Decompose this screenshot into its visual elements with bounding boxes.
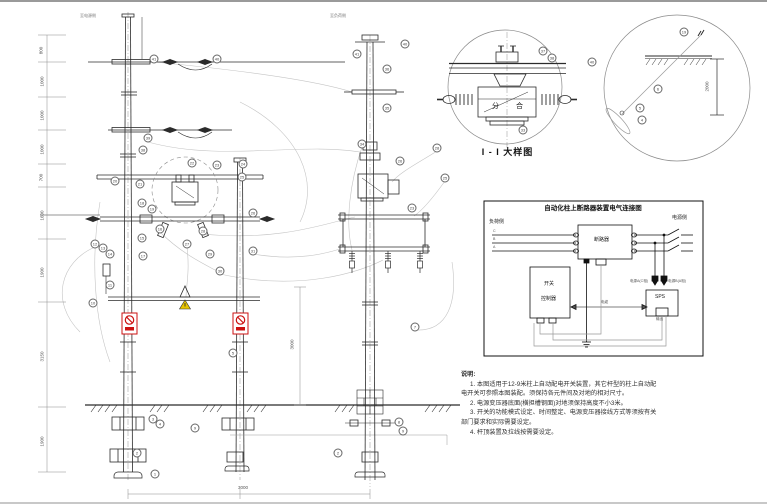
callout-bubble: 23 xyxy=(408,204,417,213)
callout-bubble: 40 xyxy=(588,58,597,67)
warning-signs xyxy=(122,300,248,334)
breaker-box-label: 断路器 xyxy=(594,238,609,244)
callout-bubble: 14 xyxy=(106,250,115,259)
controller-label-1: 开关 xyxy=(544,282,554,288)
ruler-dim-label: 1900 xyxy=(41,267,46,277)
detail-i-i-title: I - I 大样图 xyxy=(465,148,550,158)
sps-input-a-label: 电源A(C相) xyxy=(620,279,648,283)
callout-bubble: 33 xyxy=(519,126,528,135)
callout-bubble: 26 xyxy=(396,157,405,166)
callout-bubble: 11 xyxy=(106,281,115,290)
callout-bubble: 9 xyxy=(191,424,200,433)
breaker-open-label: 分 xyxy=(492,103,499,111)
note-line: 4. 杆顶装置及拉线按需要设定。 xyxy=(461,428,761,438)
phase-b-label: B xyxy=(493,237,495,241)
ruler-dim-label: 800 xyxy=(39,47,44,55)
stay-dim-label: 2000 xyxy=(706,81,711,91)
breaker-close-label: 合 xyxy=(516,103,523,111)
callout-bubble: 21 xyxy=(136,180,145,189)
callout-bubble: 5 xyxy=(229,349,238,358)
load-side-label: 负荷侧 xyxy=(489,220,504,226)
callout-bubble: 2 xyxy=(133,449,142,458)
wiring-title: 自动化柱上断路器装置电气连接图 xyxy=(493,205,693,212)
callout-bubble: 1 xyxy=(151,470,160,479)
note-line: 部门要求和实际需要设定。 xyxy=(461,418,761,428)
ruler-dim-label: 1000 xyxy=(41,110,46,120)
sps-input-b-label: 电源B(A相) xyxy=(668,279,686,283)
phase-c-label: C xyxy=(493,229,496,233)
span-dim-label: 3000 xyxy=(238,486,248,491)
callout-bubble: 36 xyxy=(383,65,392,74)
cable-label: 电缆 xyxy=(601,300,608,304)
no-climbing-sign xyxy=(122,313,137,334)
callout-bubble: 4 xyxy=(156,420,165,429)
ruler-dim-label: 700 xyxy=(39,174,44,182)
sps-output-label: 输出 xyxy=(656,317,663,321)
ruler-dim-label: 1000 xyxy=(41,144,46,154)
source-side-label: 电源侧 xyxy=(672,216,687,222)
callout-bubble: 37 xyxy=(539,47,548,56)
callout-bubble: 41 xyxy=(150,55,159,64)
drawing-sheet: 至电源侧 至负荷侧 I - I 大样图 分 合 2000 3000 3000 自… xyxy=(0,0,767,504)
callout-bubble: 9 xyxy=(399,427,408,436)
callout-bubble: 22 xyxy=(188,159,197,168)
phase-a-label: A xyxy=(493,245,495,249)
dimension-lines xyxy=(38,35,370,499)
callout-bubble: 28 xyxy=(433,144,442,153)
callout-bubble: 6 xyxy=(654,85,663,94)
callout-bubble: 10 xyxy=(89,299,98,308)
callout-bubble: 16 xyxy=(156,225,165,234)
callout-bubble: 15 xyxy=(138,234,147,243)
callout-bubble: 8 xyxy=(395,418,404,427)
detail-i-i xyxy=(437,30,577,148)
callout-bubble: 30 xyxy=(216,267,225,276)
callout-bubble: 18 xyxy=(138,199,147,208)
callout-bubble: 20 xyxy=(111,177,120,186)
leader-lines xyxy=(62,62,453,362)
callout-bubble: 24 xyxy=(239,160,248,169)
callout-bubble: 19 xyxy=(148,205,157,214)
callout-bubble: 29 xyxy=(206,250,215,259)
controller-label-2: 控制器 xyxy=(541,297,556,303)
height-dim-label: 3000 xyxy=(291,339,296,349)
notes-lines: 1. 本图适用于12-9米柱上自动配电开关装置，其它杆型的柱上自动配电开关可参照… xyxy=(461,380,761,438)
callout-bubble: 4 xyxy=(638,116,647,125)
callout-bubble: 17 xyxy=(139,252,148,261)
detail-stay-wire xyxy=(603,15,750,161)
incoming-line-label: 至电源侧 xyxy=(80,14,96,18)
ruler-dim-label: 1900 xyxy=(41,436,46,446)
callout-bubble: 38 xyxy=(548,54,557,63)
callout-bubble: 28 xyxy=(199,227,208,236)
note-line: 3. 开关的功能模式设定、时间整定、电源变压器接线方式等须按有关 xyxy=(461,408,761,418)
callout-bubble: 39 xyxy=(144,134,153,143)
ruler-dim-label: 1600 xyxy=(41,210,46,220)
callout-bubble: 26 xyxy=(249,209,258,218)
callout-bubble: 38 xyxy=(139,146,148,155)
ruler-dim-label: 3150 xyxy=(41,351,46,361)
notes-heading: 说明: xyxy=(461,370,761,380)
callout-bubble: 25 xyxy=(238,173,247,182)
callout-bubble: 19 xyxy=(680,28,689,37)
callout-bubble: 34 xyxy=(358,140,367,149)
callout-bubble: 31 xyxy=(249,247,258,256)
callout-bubble: 35 xyxy=(383,104,392,113)
notes-block: 说明: 1. 本图适用于12-9米柱上自动配电开关装置，其它杆型的柱上自动配电开… xyxy=(461,370,761,437)
callout-bubble: 25 xyxy=(441,174,450,183)
no-climbing-sign xyxy=(233,313,248,334)
callout-bubble: 2 xyxy=(334,449,343,458)
sps-box-label: SPS xyxy=(655,295,665,301)
note-line: 1. 本图适用于12-9米柱上自动配电开关装置，其它杆型的柱上自动配 xyxy=(461,380,761,390)
callout-bubble: 7 xyxy=(411,323,420,332)
callout-bubble: 5 xyxy=(636,104,645,113)
side-view xyxy=(338,35,430,487)
callout-bubble: 40 xyxy=(401,40,410,49)
outgoing-line-label: 至负荷侧 xyxy=(330,14,346,18)
callout-bubble: 23 xyxy=(213,161,222,170)
callout-bubble: 27 xyxy=(183,240,192,249)
ruler-dim-label: 1000 xyxy=(41,76,46,86)
callout-bubble: 41 xyxy=(353,50,362,59)
callout-bubble: 40 xyxy=(213,55,222,64)
note-line: 电开关可参照本图装配。须保持各元件间及对地的相对尺寸。 xyxy=(461,389,761,399)
note-line: 2. 电源变压器底面(横担槽钢面)对地须保持高度不小3米。 xyxy=(461,399,761,409)
